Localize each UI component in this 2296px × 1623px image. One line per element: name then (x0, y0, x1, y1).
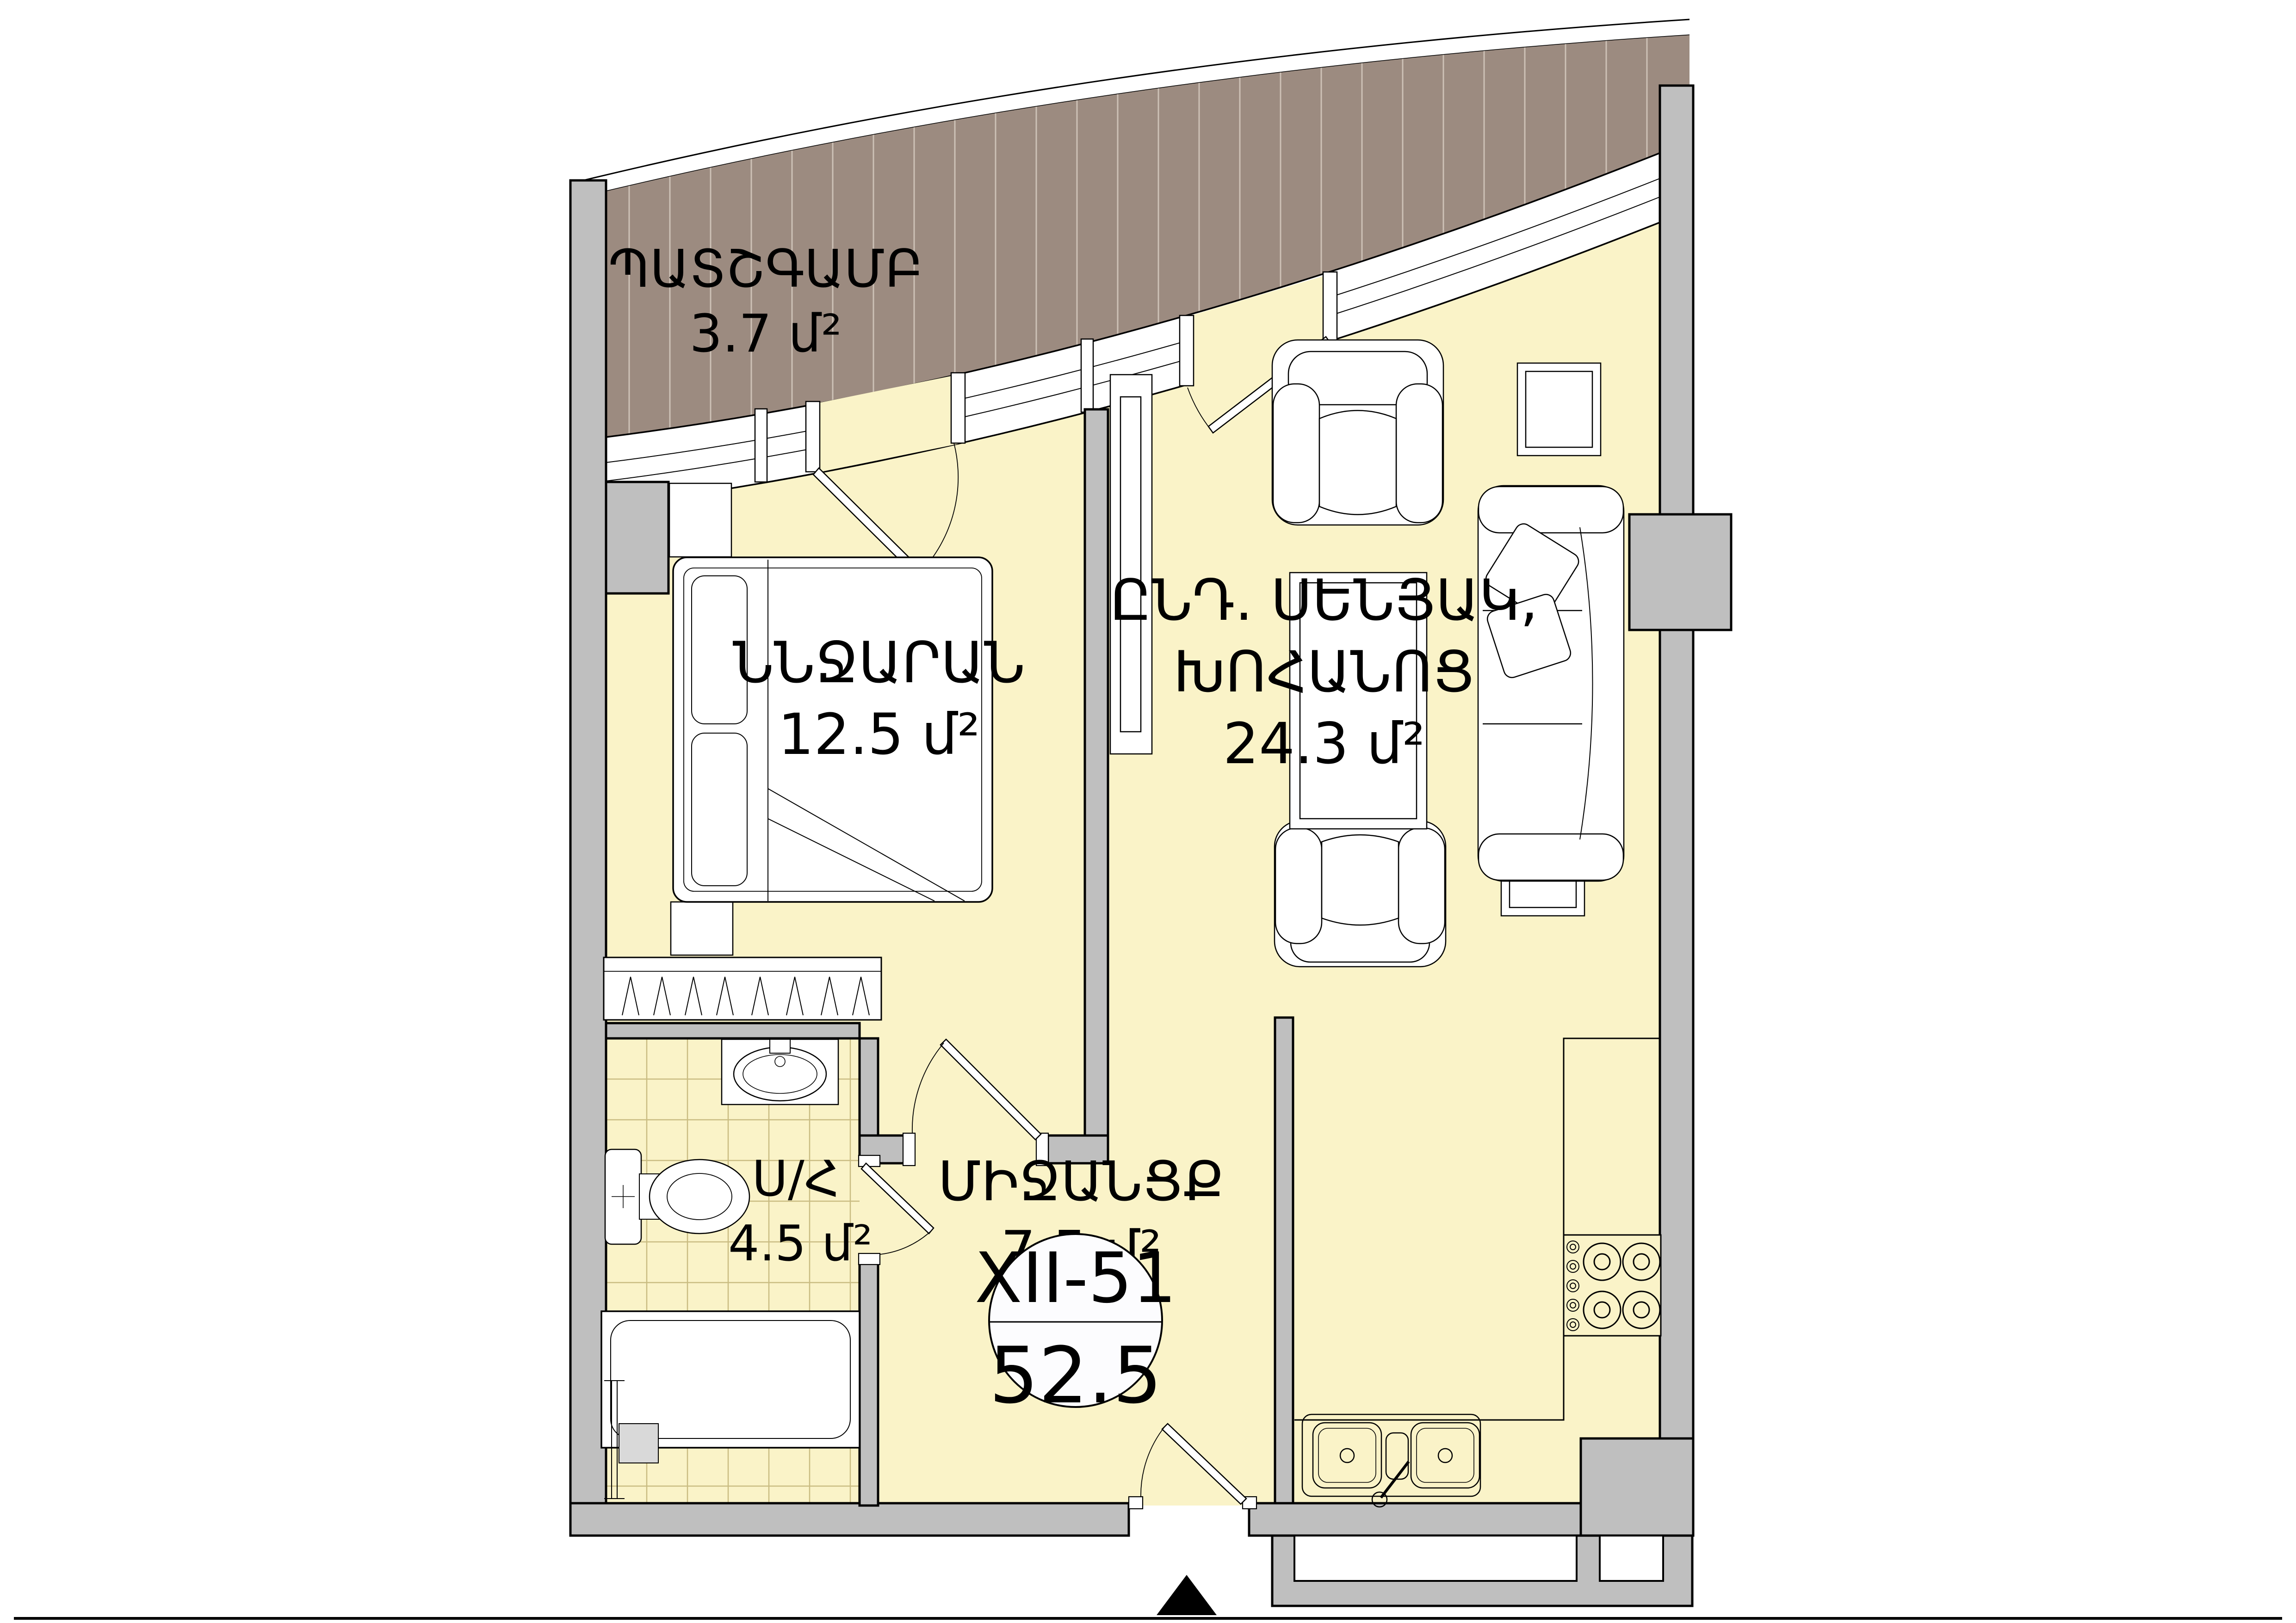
apartment-badge: XII-51 52.5 (975, 1234, 1176, 1421)
bathroom-wall-top (606, 1023, 860, 1038)
bathroom-wall-right-upper (860, 1038, 878, 1135)
armchair-top (1272, 340, 1443, 525)
bedroom-area: 12.5 մ² (778, 702, 980, 767)
nightstand (669, 483, 731, 557)
sofa (1478, 486, 1624, 881)
shower-mixer (619, 1424, 658, 1463)
bathroom-sink (722, 1039, 838, 1105)
side-table-top (1517, 363, 1601, 456)
bathroom-area: 4.5 մ² (728, 1215, 873, 1272)
partition-bedroom-living (1085, 409, 1108, 1135)
exterior-wall-right (1660, 86, 1693, 1441)
stove (1564, 1235, 1661, 1336)
pillow (692, 733, 747, 886)
bathroom-name: Ս/Հ (752, 1150, 839, 1207)
exterior-wall-bottom-right (1249, 1503, 1582, 1536)
wardrobe (604, 957, 881, 1020)
bathroom-wall-right-lower (860, 1256, 878, 1506)
bedroom-name: ՆՆՋԱՐԱՆ (733, 630, 1025, 696)
window-mullion (1081, 339, 1093, 412)
armchair-bottom (1275, 821, 1446, 967)
exterior-wall-corner-br (1581, 1438, 1693, 1536)
floor-plan-page: ՊԱՏՇԳԱՄԲ 3.7 մ² ՆՆՋԱՐԱՆ 12.5 մ² ԸՆԴ. ՍԵՆ… (0, 0, 2296, 1623)
wall-pier-bedroom (606, 482, 668, 593)
living-name-line2: ԽՈՀԱՆՈՑ (1173, 639, 1475, 705)
wall-pillar-right (1629, 514, 1731, 630)
badge-apartment-number: XII-51 (975, 1238, 1176, 1319)
living-name-line1: ԸՆԴ. ՍԵՆՅԱԿ, (1110, 568, 1538, 633)
partition-kitchen (1275, 1018, 1293, 1503)
tv-cabinet (1110, 375, 1152, 754)
balcony-area: 3.7 մ² (689, 304, 842, 364)
nightstand (671, 902, 733, 955)
window-mullion (755, 409, 767, 482)
balcony-name: ՊԱՏՇԳԱՄԲ (608, 239, 923, 299)
exterior-wall-bottom-left (570, 1503, 1129, 1536)
stairwell-block (1272, 1536, 1692, 1606)
hallway-name: ՄԻՋԱՆՑՔ (938, 1149, 1224, 1213)
badge-total-area: 52.5 (989, 1330, 1162, 1421)
living-area: 24.3 մ² (1223, 711, 1425, 777)
floor-plan-drawing: ՊԱՏՇԳԱՄԲ 3.7 մ² ՆՆՋԱՐԱՆ 12.5 մ² ԸՆԴ. ՍԵՆ… (0, 0, 2296, 1623)
